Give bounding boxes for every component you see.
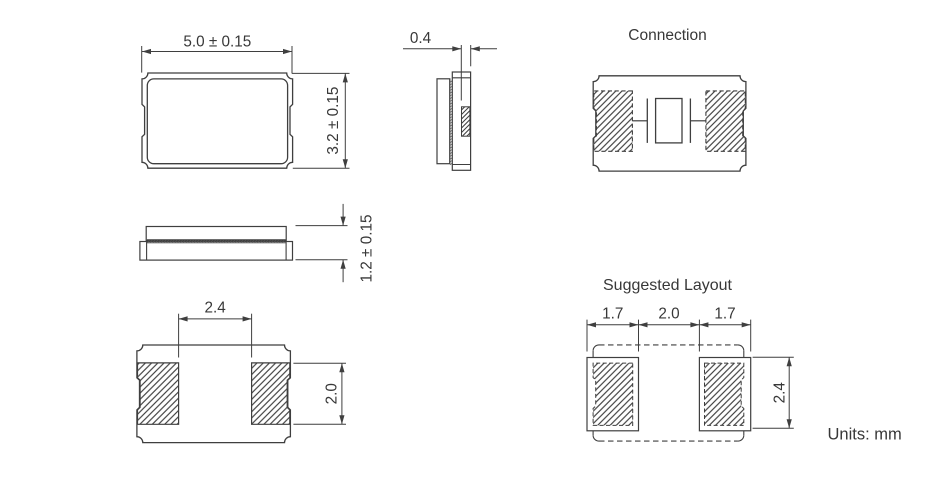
svg-text:1.7: 1.7 — [602, 306, 623, 323]
svg-text:Units: mm: Units: mm — [828, 426, 902, 444]
svg-text:3.2 ± 0.15: 3.2 ± 0.15 — [325, 87, 342, 155]
svg-text:2.4: 2.4 — [771, 382, 788, 404]
svg-text:2.0: 2.0 — [323, 383, 340, 404]
svg-text:2.4: 2.4 — [204, 300, 226, 317]
svg-text:Connection: Connection — [628, 27, 706, 44]
svg-text:1.7: 1.7 — [714, 306, 735, 323]
svg-text:1.2 ± 0.15: 1.2 ± 0.15 — [359, 215, 376, 283]
svg-text:2.0: 2.0 — [658, 306, 679, 323]
svg-text:0.4: 0.4 — [410, 30, 432, 47]
svg-text:Suggested Layout: Suggested Layout — [603, 277, 733, 294]
svg-text:5.0 ± 0.15: 5.0 ± 0.15 — [183, 33, 251, 50]
